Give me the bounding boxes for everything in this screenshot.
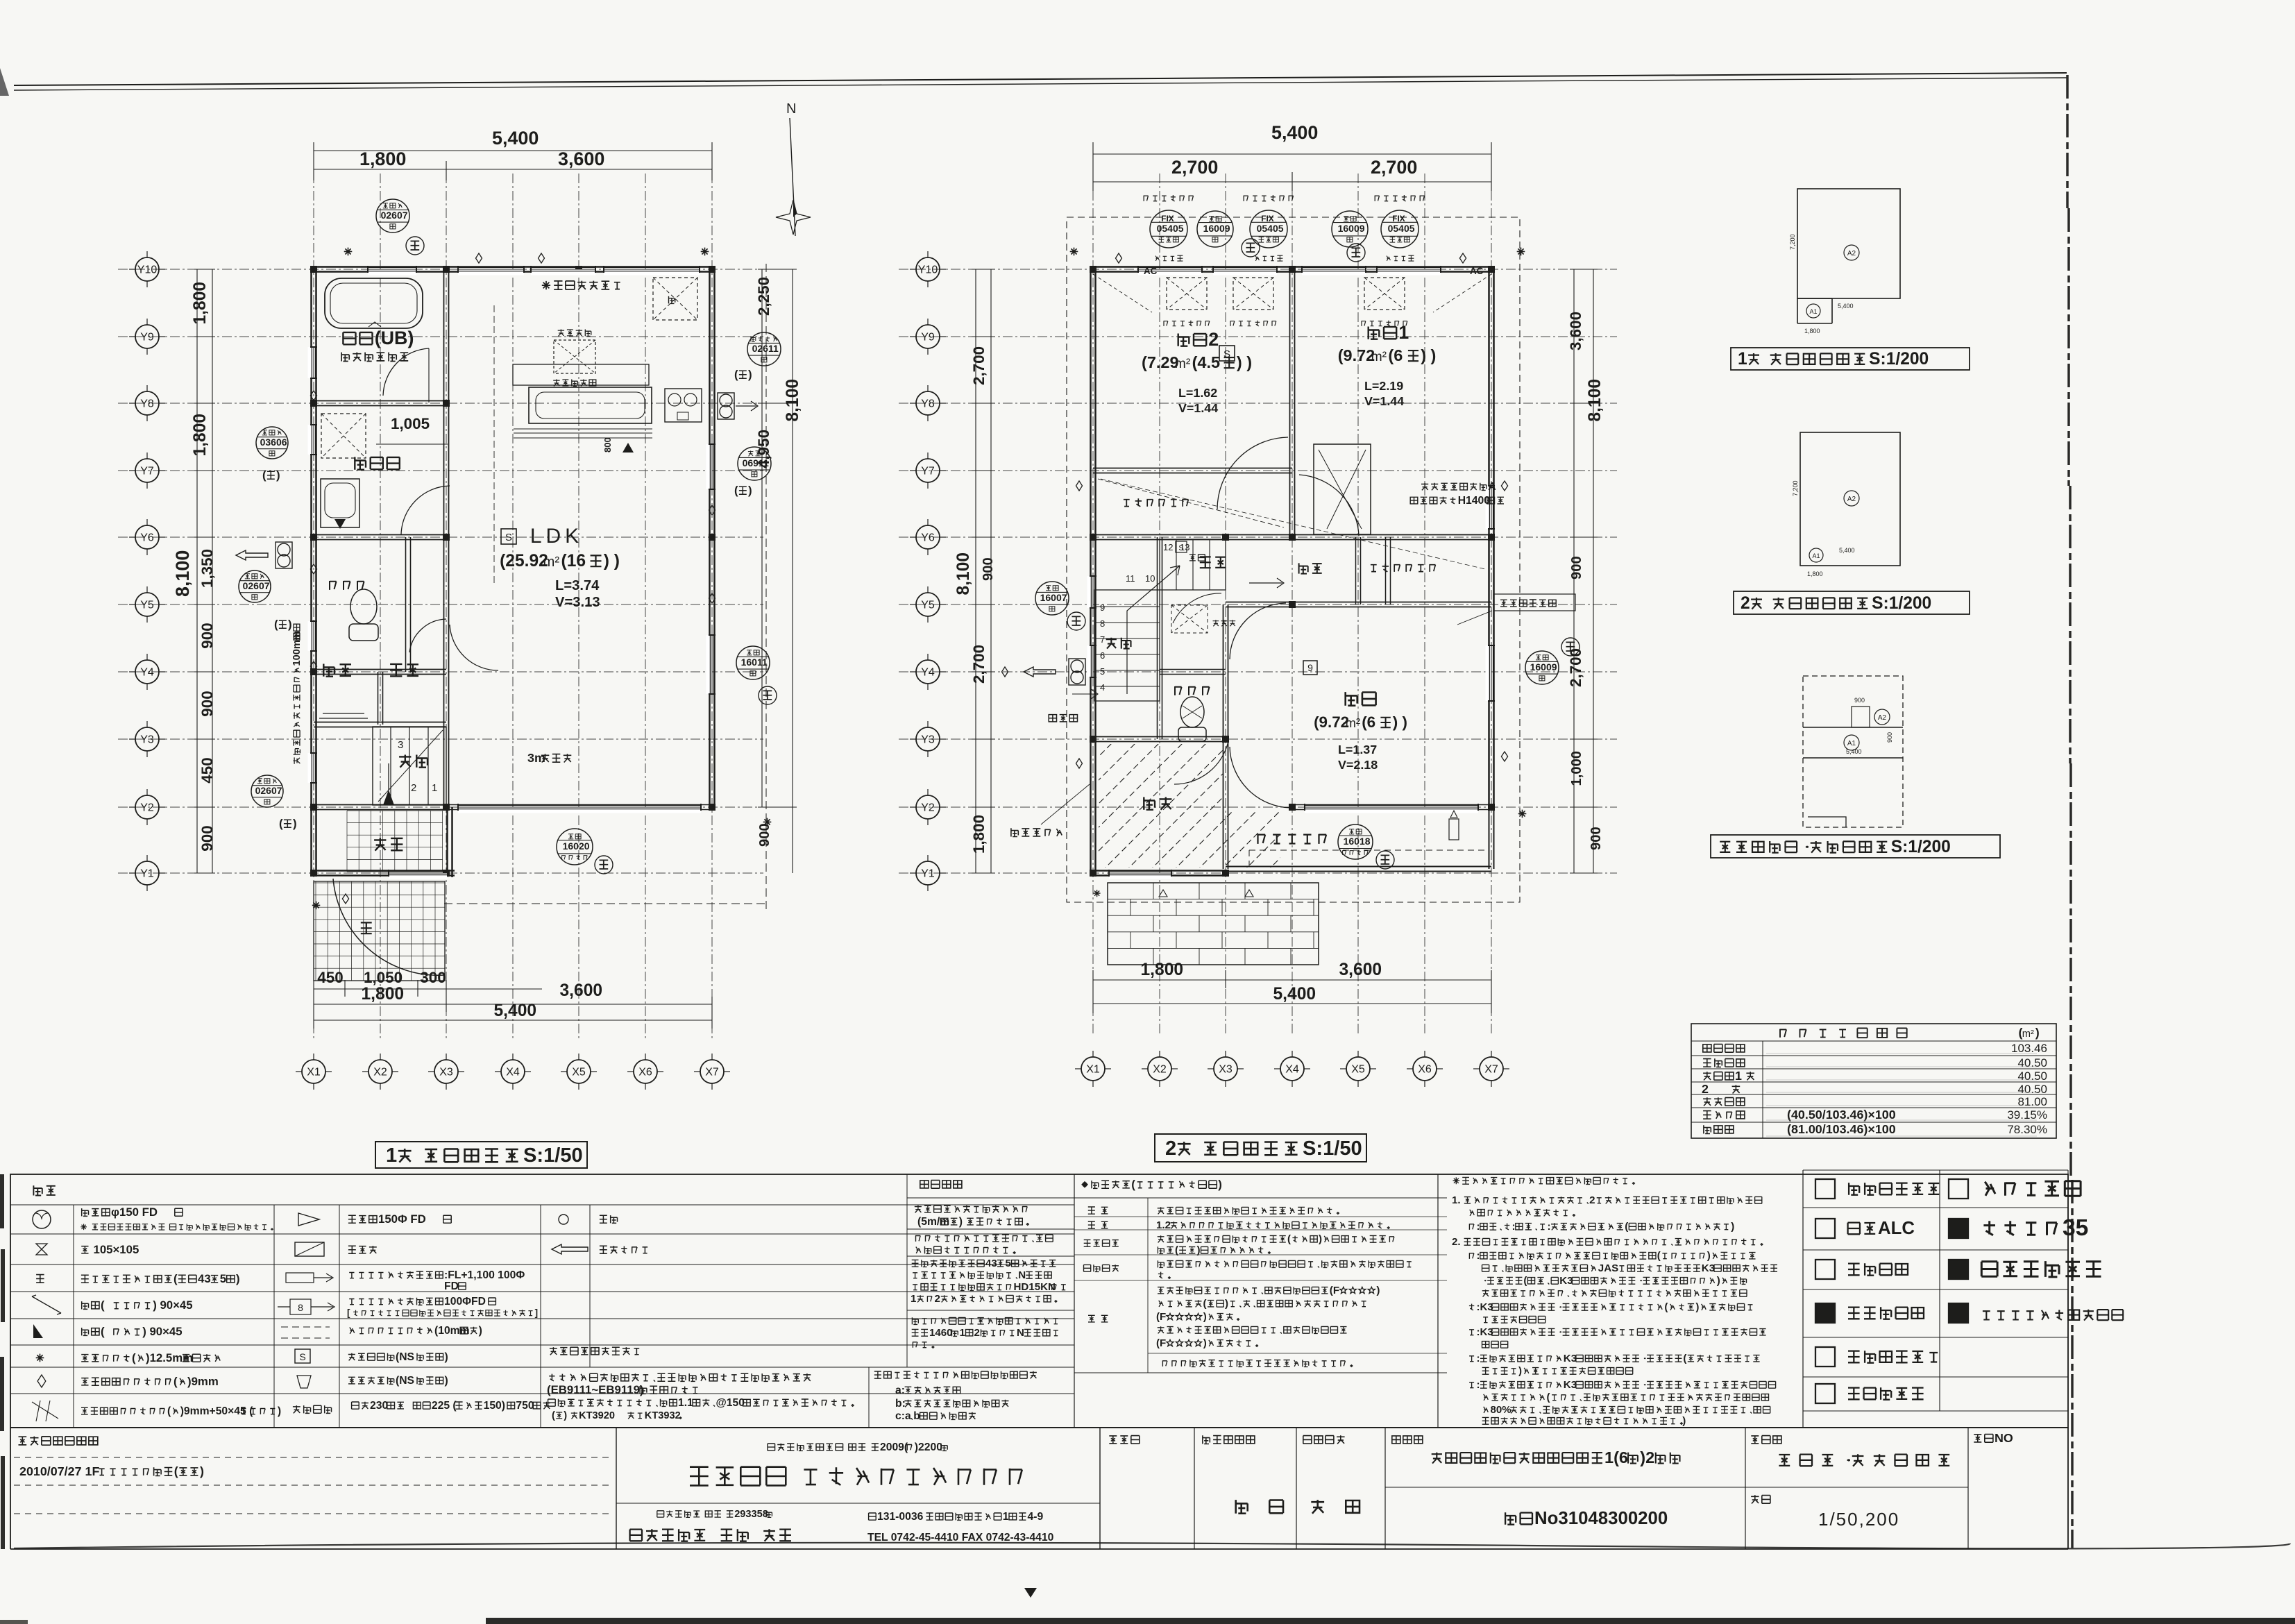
svg-text:(4.5: (4.5 [1192, 353, 1221, 371]
svg-text:(F: (F [1156, 1337, 1166, 1349]
svg-text:): ) [1695, 1301, 1699, 1313]
svg-text:1: 1 [911, 1293, 916, 1305]
svg-text:X5: X5 [572, 1067, 586, 1079]
svg-text:(: ( [1131, 1178, 1135, 1191]
svg-text:X7: X7 [1484, 1064, 1498, 1076]
svg-text:1460: 1460 [929, 1327, 953, 1339]
svg-text:(7.29: (7.29 [1142, 353, 1179, 371]
svg-text:8,100: 8,100 [954, 552, 973, 595]
svg-text:05405: 05405 [1388, 223, 1415, 234]
svg-text:1: 1 [1738, 350, 1747, 369]
svg-text:): ) [959, 1216, 963, 1228]
svg-text:05405: 05405 [1257, 223, 1284, 234]
svg-text:Y2: Y2 [921, 802, 935, 814]
svg-text:900: 900 [198, 825, 216, 851]
svg-text:(16: (16 [561, 552, 586, 570]
svg-text:FIX: FIX [1392, 214, 1405, 223]
svg-text:1,800: 1,800 [970, 815, 988, 854]
svg-text:1,000: 1,000 [1569, 751, 1584, 786]
svg-text:): ) [200, 1464, 204, 1478]
svg-text:): ) [1717, 1275, 1720, 1287]
svg-text:16009: 16009 [1338, 223, 1365, 234]
svg-text:800: 800 [602, 437, 613, 452]
svg-text:16009: 16009 [1203, 223, 1230, 234]
svg-text:m²: m² [1371, 350, 1387, 364]
svg-text:43: 43 [985, 1258, 997, 1269]
svg-text::FL+1,100 100Φ: :FL+1,100 100Φ [444, 1269, 525, 1281]
svg-text:FIX: FIX [1261, 214, 1273, 223]
svg-text:(10mm: (10mm [434, 1325, 470, 1337]
svg-text:NO: NO [1995, 1431, 2013, 1445]
svg-text:X4: X4 [1285, 1064, 1299, 1076]
svg-text:c:a: c:a [895, 1410, 911, 1422]
svg-text:5: 5 [1006, 1258, 1011, 1269]
svg-text:S:1/200: S:1/200 [1891, 838, 1951, 856]
svg-text:Y5: Y5 [140, 600, 154, 611]
svg-text:K3: K3 [1559, 1275, 1573, 1287]
svg-text:a:: a: [895, 1385, 905, 1396]
svg-text:8,100: 8,100 [172, 550, 193, 597]
svg-text:): ) [1225, 1298, 1228, 1310]
svg-text:]: ] [535, 1308, 538, 1318]
svg-text:Y4: Y4 [921, 667, 935, 679]
svg-text:Y4: Y4 [140, 667, 154, 679]
svg-text:Y8: Y8 [140, 398, 154, 410]
svg-text:X7: X7 [705, 1067, 719, 1079]
svg-text:A1: A1 [1847, 740, 1856, 747]
svg-text:2,700: 2,700 [970, 346, 988, 385]
svg-text:5,400: 5,400 [1271, 122, 1318, 143]
svg-text:2: 2 [1589, 1194, 1595, 1206]
svg-text:Y8: Y8 [921, 398, 935, 410]
svg-text:(25.92: (25.92 [500, 552, 548, 570]
svg-text:39.15%: 39.15% [2007, 1108, 2047, 1122]
svg-text:3,600: 3,600 [1567, 312, 1584, 350]
svg-text:V=2.18: V=2.18 [1338, 758, 1378, 772]
svg-text:1.2: 1.2 [1156, 1219, 1171, 1231]
svg-text:4: 4 [1100, 682, 1105, 693]
svg-text:2.: 2. [1452, 1236, 1461, 1248]
svg-text:3,600: 3,600 [558, 149, 604, 169]
svg-text:X2: X2 [373, 1067, 387, 1079]
svg-text:): ) [1319, 1233, 1322, 1245]
svg-text:3m: 3m [527, 751, 545, 765]
svg-text:(: ( [173, 1272, 178, 1285]
svg-text:16011: 16011 [741, 657, 768, 668]
svg-text:5,400: 5,400 [494, 1001, 537, 1020]
svg-text:): ) [479, 1325, 482, 1337]
svg-text:Y5: Y5 [921, 600, 935, 611]
svg-text:1: 1 [432, 782, 437, 794]
svg-text:): ) [1376, 1285, 1380, 1296]
svg-text:1/50,200: 1/50,200 [1818, 1509, 1899, 1530]
svg-text:4-9: 4-9 [1028, 1511, 1044, 1523]
svg-text:H1400: H1400 [1458, 495, 1491, 507]
svg-text:(: ( [274, 618, 278, 631]
svg-text:1,005: 1,005 [391, 415, 430, 432]
svg-text:S: S [1178, 544, 1183, 552]
svg-text:5,400: 5,400 [492, 128, 539, 149]
svg-text:K3: K3 [1702, 1262, 1715, 1274]
svg-text:81.00: 81.00 [2017, 1095, 2047, 1108]
svg-text:(: ( [101, 1299, 105, 1312]
svg-text:m²: m² [1346, 716, 1360, 730]
svg-text:06911: 06911 [743, 457, 769, 468]
svg-text:K3: K3 [1564, 1379, 1577, 1391]
svg-text:900: 900 [1886, 732, 1893, 743]
svg-text:750: 750 [516, 1400, 534, 1412]
svg-text:) ): ) ) [1421, 346, 1436, 364]
svg-text:(: ( [167, 1405, 171, 1417]
svg-text:A1: A1 [1812, 552, 1820, 559]
svg-text:1,800: 1,800 [362, 985, 405, 1004]
svg-text:2: 2 [411, 782, 416, 794]
svg-text:7: 7 [1100, 634, 1105, 645]
svg-text:Y9: Y9 [921, 332, 935, 344]
svg-text:Y10: Y10 [137, 264, 158, 276]
svg-text:2: 2 [1208, 329, 1219, 350]
svg-text:(5m/m: (5m/m [917, 1216, 949, 1228]
svg-text:131-0036: 131-0036 [877, 1511, 924, 1523]
svg-text:1: 1 [1735, 1069, 1742, 1083]
svg-text:AC: AC [1144, 266, 1158, 276]
svg-text:100ΦFD: 100ΦFD [444, 1296, 486, 1308]
svg-text:02611: 02611 [752, 343, 779, 354]
svg-text:N: N [1017, 1327, 1024, 1339]
svg-text:900: 900 [198, 623, 216, 648]
svg-text:1: 1 [960, 1327, 965, 1339]
svg-text:02607: 02607 [381, 210, 408, 221]
svg-text:V=1.44: V=1.44 [1178, 401, 1218, 415]
svg-text:6: 6 [1100, 650, 1105, 661]
svg-text:Y7: Y7 [140, 466, 154, 477]
svg-text:16007: 16007 [1040, 592, 1067, 603]
svg-text:TEL 0742-45-4410 FAX 0742-43: TEL 0742-45-4410 FAX 0742-43-4410 [867, 1532, 1054, 1543]
svg-text:7,200: 7,200 [1789, 234, 1796, 250]
svg-text:b:: b: [895, 1398, 906, 1410]
svg-text:1: 1 [386, 1144, 397, 1167]
svg-text:(: ( [734, 484, 738, 497]
svg-text:8,100: 8,100 [784, 379, 802, 422]
svg-text:(6: (6 [1362, 713, 1375, 731]
svg-text:φ150 FD: φ150 FD [111, 1206, 158, 1219]
svg-text:) ): ) ) [1393, 713, 1407, 731]
svg-text:(40.50/103.46)×100: (40.50/103.46)×100 [1787, 1108, 1896, 1122]
svg-text:S:1/50: S:1/50 [523, 1144, 583, 1167]
svg-text:16018: 16018 [1344, 836, 1371, 847]
svg-text:): ) [564, 1410, 567, 1421]
svg-text:3: 3 [398, 739, 403, 751]
svg-text:900: 900 [1589, 827, 1604, 850]
svg-text:HD15KN: HD15KN [1014, 1281, 1056, 1293]
svg-text:78.30%: 78.30% [2007, 1123, 2047, 1136]
svg-text:Y3: Y3 [140, 734, 154, 746]
svg-text:L=2.19: L=2.19 [1364, 379, 1403, 393]
svg-text:): ) [278, 1405, 281, 1417]
svg-text:(: ( [132, 1351, 136, 1364]
svg-text:): ) [1197, 1244, 1201, 1256]
svg-text:): ) [445, 1351, 448, 1363]
svg-text:S: S [299, 1351, 305, 1362]
svg-text:X6: X6 [638, 1067, 652, 1079]
svg-text:900: 900 [198, 691, 216, 716]
svg-text:2: 2 [1165, 1137, 1176, 1160]
svg-text::: : [1477, 1221, 1480, 1233]
svg-text:9: 9 [1307, 662, 1313, 673]
svg-text:): ) [288, 618, 292, 631]
svg-text:43: 43 [198, 1272, 211, 1285]
svg-text:150Φ FD: 150Φ FD [378, 1212, 426, 1226]
svg-text:A: A [1488, 481, 1496, 493]
svg-text:(F: (F [1330, 1285, 1339, 1296]
svg-text:A2: A2 [1847, 250, 1856, 257]
svg-text:L=3.74: L=3.74 [555, 578, 600, 593]
svg-text:16020: 16020 [563, 840, 590, 852]
svg-text:150): 150) [484, 1400, 505, 1412]
svg-text:5: 5 [1100, 666, 1105, 677]
svg-text:) 90×45: ) 90×45 [142, 1325, 182, 1338]
svg-text:(F: (F [1156, 1311, 1166, 1323]
svg-text:1: 1 [1398, 322, 1409, 343]
svg-text:105×105: 105×105 [94, 1243, 139, 1256]
svg-text:(81.00/103.46)×100: (81.00/103.46)×100 [1787, 1122, 1896, 1136]
svg-text:293358: 293358 [734, 1509, 768, 1520]
svg-text:): ) [1707, 1250, 1711, 1262]
svg-text:2,700: 2,700 [970, 645, 988, 684]
svg-text:L=1.37: L=1.37 [1338, 743, 1377, 756]
svg-text:03606: 03606 [260, 437, 287, 448]
svg-text:(: ( [279, 817, 283, 830]
svg-text:1,800: 1,800 [1804, 328, 1820, 335]
svg-text:230: 230 [370, 1400, 388, 1412]
svg-text:): ) [1731, 1221, 1734, 1233]
svg-text:): ) [1218, 1178, 1222, 1191]
svg-text:(: ( [173, 1375, 178, 1388]
svg-text:2: 2 [935, 1293, 940, 1305]
svg-text:L=1.62: L=1.62 [1178, 386, 1217, 400]
svg-text:No31048300200: No31048300200 [1534, 1509, 1668, 1528]
svg-text:FIX: FIX [1161, 214, 1174, 223]
svg-text:1,800: 1,800 [359, 149, 406, 169]
svg-text:V=1.44: V=1.44 [1364, 394, 1404, 408]
svg-text::: : [1512, 1221, 1516, 1233]
svg-text:8: 8 [298, 1302, 303, 1313]
svg-text:5,400: 5,400 [1839, 547, 1855, 554]
svg-text:(: ( [734, 368, 738, 381]
svg-text:X5: X5 [1351, 1064, 1365, 1076]
svg-text:1,800: 1,800 [191, 414, 210, 457]
svg-text:b: b [913, 1410, 920, 1422]
svg-text:2: 2 [1702, 1082, 1709, 1096]
svg-text:16009: 16009 [1530, 661, 1557, 673]
svg-text:1(6: 1(6 [1604, 1448, 1628, 1466]
svg-text:)2: )2 [1640, 1448, 1654, 1466]
svg-text:100mm: 100mm [291, 631, 303, 666]
svg-text:40.50: 40.50 [2017, 1083, 2047, 1096]
svg-text:A1: A1 [1809, 308, 1817, 315]
svg-text:7,200: 7,200 [1792, 480, 1799, 496]
svg-text:[: [ [347, 1308, 350, 1318]
svg-text:X1: X1 [307, 1067, 321, 1079]
svg-text:X3: X3 [1219, 1064, 1233, 1076]
svg-text:) 90×45: ) 90×45 [153, 1299, 192, 1312]
svg-text:1.1: 1.1 [678, 1397, 693, 1409]
svg-text:) ): ) ) [1237, 353, 1252, 371]
svg-text:(NS: (NS [396, 1351, 414, 1363]
svg-text:N: N [1018, 1269, 1026, 1281]
svg-text:(: ( [262, 468, 266, 482]
svg-text:): ) [2035, 1026, 2040, 1040]
svg-text:3,600: 3,600 [560, 981, 603, 1000]
svg-text:Y9: Y9 [140, 332, 154, 344]
svg-text:900: 900 [981, 557, 996, 581]
svg-text:80%: 80% [1491, 1404, 1512, 1416]
svg-text:(: ( [101, 1325, 105, 1338]
svg-text:5,400: 5,400 [1838, 303, 1854, 310]
svg-text:10: 10 [1145, 573, 1155, 584]
svg-text:(: ( [174, 1464, 178, 1478]
svg-text:900: 900 [1569, 556, 1584, 580]
svg-text:Y6: Y6 [140, 532, 154, 544]
svg-text:): ) [1203, 1337, 1207, 1349]
svg-text:5,400: 5,400 [1846, 748, 1862, 755]
svg-text:225 (: 225 ( [432, 1400, 457, 1412]
svg-text:(UB): (UB) [375, 328, 414, 348]
svg-text:2010/07/27 1F: 2010/07/27 1F [19, 1464, 99, 1478]
svg-text:12: 12 [1163, 542, 1173, 552]
svg-text:KT3920: KT3920 [579, 1410, 615, 1421]
svg-text:X1: X1 [1086, 1064, 1100, 1076]
svg-text:N: N [786, 101, 796, 117]
svg-text:Y6: Y6 [921, 532, 935, 544]
svg-text:S:1/200: S:1/200 [1872, 594, 1931, 613]
svg-text:V=3.13: V=3.13 [555, 595, 600, 610]
svg-text:X4: X4 [506, 1067, 520, 1079]
svg-text:1,800: 1,800 [1141, 961, 1184, 979]
svg-text:3,600: 3,600 [1339, 961, 1382, 979]
svg-text::K3: :K3 [1477, 1301, 1493, 1313]
svg-text:)9mm+50×45 (: )9mm+50×45 ( [180, 1405, 253, 1417]
svg-text:K3: K3 [1564, 1353, 1577, 1364]
svg-text:35: 35 [2063, 1215, 2088, 1241]
svg-text:450: 450 [198, 757, 216, 783]
svg-text:S: S [1223, 348, 1230, 360]
svg-text:) ): ) ) [604, 552, 620, 570]
svg-text:8,100: 8,100 [1586, 379, 1604, 422]
svg-text:X6: X6 [1418, 1064, 1432, 1076]
svg-text:40.50: 40.50 [2017, 1056, 2047, 1069]
svg-text:m²: m² [2022, 1029, 2034, 1040]
svg-text:900: 900 [757, 823, 772, 847]
svg-text:(: ( [552, 1410, 555, 1421]
svg-text:): ) [1518, 1365, 1522, 1377]
svg-text::K3: :K3 [1477, 1326, 1493, 1338]
svg-text:02607: 02607 [255, 785, 282, 796]
svg-text:Y1: Y1 [921, 868, 935, 880]
svg-text:LDK: LDK [530, 525, 583, 548]
svg-text:): ) [748, 484, 752, 497]
svg-text:300: 300 [420, 969, 446, 986]
svg-text:(9.72: (9.72 [1314, 713, 1349, 731]
svg-text:Y1: Y1 [140, 868, 154, 880]
svg-text:1,350: 1,350 [198, 549, 216, 588]
svg-text:2,250: 2,250 [755, 277, 772, 316]
svg-text:02607: 02607 [243, 580, 270, 591]
svg-text:AC: AC [1470, 266, 1484, 276]
svg-text:900: 900 [1854, 697, 1865, 704]
svg-text:)2200: )2200 [915, 1441, 942, 1453]
svg-text:): ) [445, 1375, 448, 1387]
svg-text:m²: m² [1175, 357, 1191, 371]
svg-text:1,800: 1,800 [191, 282, 210, 325]
svg-text:Y3: Y3 [921, 734, 935, 746]
svg-text:05405: 05405 [1157, 223, 1184, 234]
svg-text:(EB9111~EB9119): (EB9111~EB9119) [547, 1383, 644, 1396]
svg-text:S:1/200: S:1/200 [1869, 350, 1929, 369]
svg-text:X3: X3 [439, 1067, 453, 1079]
svg-text:A2: A2 [1847, 496, 1856, 503]
svg-text:40.50: 40.50 [2017, 1069, 2047, 1083]
svg-text:S: S [505, 532, 512, 543]
svg-text:8: 8 [1100, 618, 1105, 629]
svg-text::: : [1477, 1379, 1480, 1391]
svg-text:)9mm: )9mm [187, 1375, 219, 1388]
svg-text:): ) [276, 468, 280, 482]
svg-text:2: 2 [974, 1327, 980, 1339]
svg-text:ALC: ALC [1878, 1219, 1915, 1238]
svg-text:Y10: Y10 [918, 264, 938, 276]
svg-text:JAS: JAS [1598, 1262, 1618, 1274]
svg-text:): ) [236, 1272, 240, 1285]
svg-text:Y2: Y2 [140, 802, 154, 814]
svg-text:X2: X2 [1153, 1064, 1167, 1076]
svg-text:@150: @150 [716, 1397, 745, 1409]
svg-text:): ) [1203, 1311, 1207, 1323]
svg-text:2,700: 2,700 [1371, 157, 1417, 178]
svg-text:2: 2 [1741, 594, 1750, 613]
svg-text:m²: m² [543, 555, 560, 570]
svg-text:A2: A2 [1878, 714, 1887, 722]
svg-text:5: 5 [220, 1272, 226, 1285]
svg-text:): ) [293, 817, 297, 830]
svg-text:9: 9 [1100, 602, 1105, 613]
svg-text:)12.5mm: )12.5mm [146, 1351, 193, 1364]
svg-text:1,800: 1,800 [1807, 570, 1823, 577]
svg-text:103.46: 103.46 [2011, 1042, 2047, 1055]
svg-text:(6: (6 [1388, 346, 1403, 364]
svg-text::: : [1477, 1353, 1480, 1364]
svg-text:1,050: 1,050 [364, 969, 403, 986]
svg-text:(9.72: (9.72 [1338, 346, 1375, 364]
svg-text:1.: 1. [1452, 1194, 1461, 1206]
svg-text::: : [1548, 1221, 1551, 1233]
svg-text:5,400: 5,400 [1273, 985, 1316, 1004]
svg-text:): ) [1682, 1415, 1686, 1427]
svg-text:2,700: 2,700 [1171, 157, 1218, 178]
svg-text:(NS: (NS [396, 1375, 414, 1387]
svg-text:2009(: 2009( [880, 1441, 908, 1453]
svg-text:KT3932: KT3932 [645, 1410, 681, 1421]
svg-text::: : [1477, 1250, 1480, 1262]
svg-text:S:1/50: S:1/50 [1303, 1137, 1362, 1160]
svg-text:FD: FD [444, 1280, 459, 1292]
svg-text:11: 11 [1126, 573, 1135, 584]
svg-text:Y7: Y7 [921, 466, 935, 477]
svg-text:1: 1 [1003, 1511, 1009, 1523]
svg-text:): ) [748, 368, 752, 381]
